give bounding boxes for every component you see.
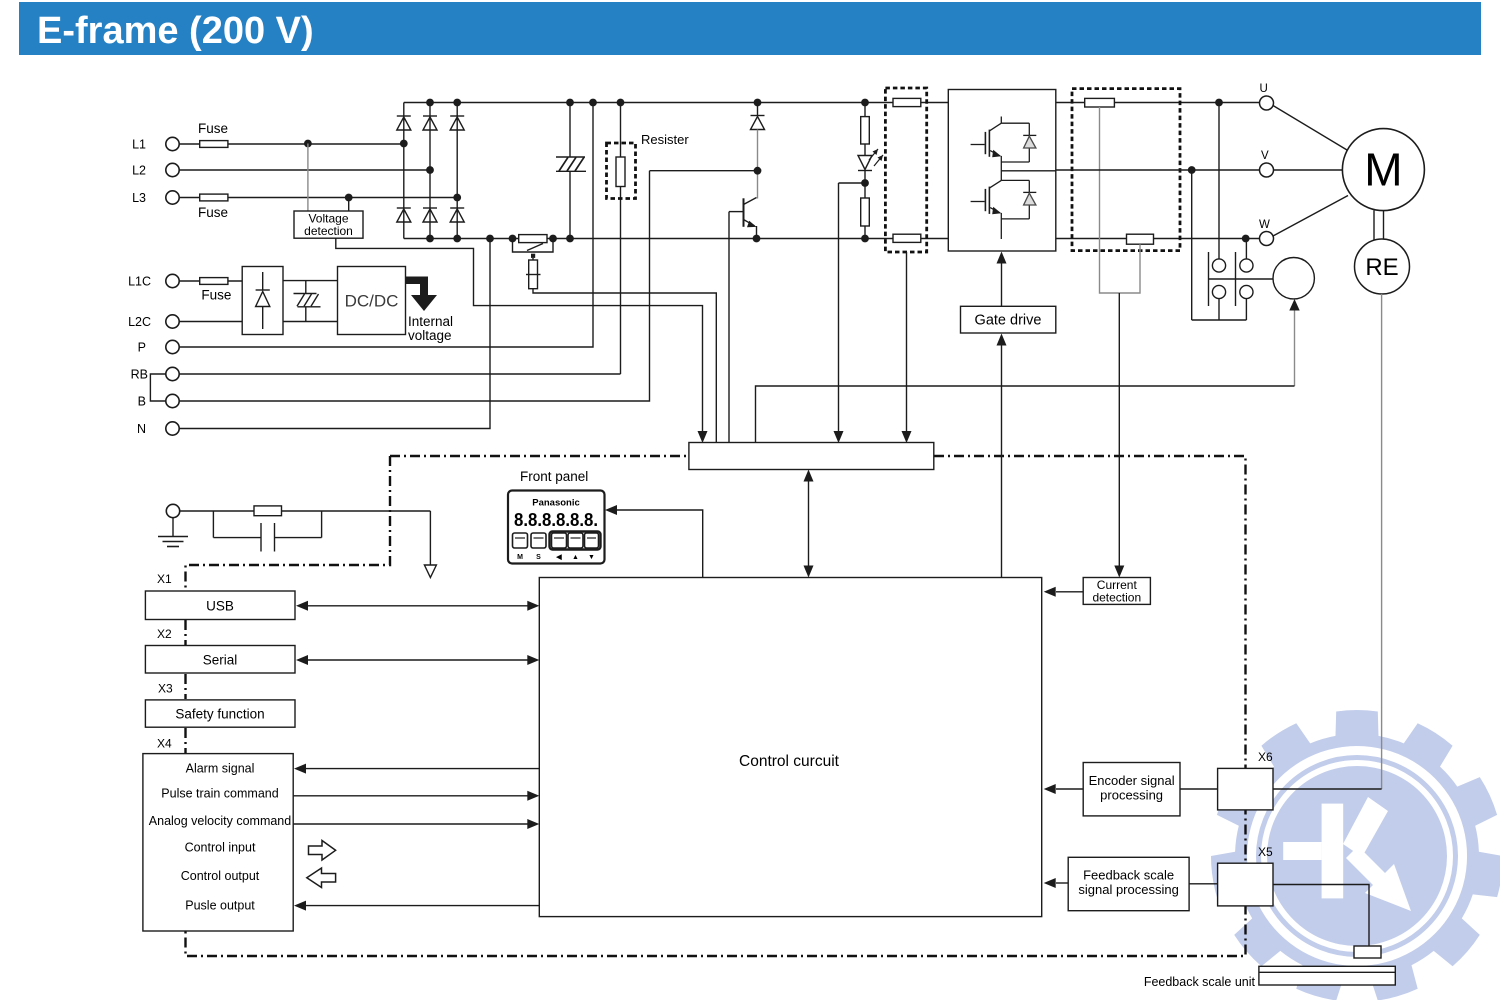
svg-text:P: P (138, 341, 146, 355)
svg-text:▲: ▲ (572, 554, 579, 561)
svg-text:X1: X1 (157, 572, 172, 586)
svg-text:X4: X4 (157, 737, 172, 751)
svg-text:U: U (1260, 83, 1268, 95)
svg-text:Control output: Control output (181, 869, 260, 883)
svg-text:N: N (137, 422, 146, 436)
svg-text:W: W (1259, 219, 1270, 231)
svg-text:Safety function: Safety function (175, 707, 264, 722)
svg-text:Feedback scale: Feedback scale (1083, 868, 1174, 883)
svg-text:Fuse: Fuse (198, 121, 228, 136)
svg-text:Control curcuit: Control curcuit (739, 753, 840, 770)
svg-text:L2: L2 (132, 164, 146, 178)
svg-text:X3: X3 (158, 682, 173, 696)
svg-text:Encoder signal: Encoder signal (1089, 773, 1175, 788)
svg-text:Fuse: Fuse (201, 288, 231, 303)
svg-text:Gate drive: Gate drive (975, 313, 1042, 329)
svg-text:processing: processing (1100, 788, 1163, 803)
svg-text:▼: ▼ (588, 554, 595, 561)
svg-text:Feedback scale unit: Feedback scale unit (1144, 975, 1256, 989)
svg-text:8.8.8.8.8.8.: 8.8.8.8.8.8. (514, 510, 598, 530)
svg-text:signal processing: signal processing (1078, 882, 1178, 897)
svg-text:Panasonic: Panasonic (532, 498, 580, 509)
svg-text:Analog velocity command: Analog velocity command (149, 814, 291, 828)
svg-text:Alarm signal: Alarm signal (186, 762, 255, 776)
svg-text:B: B (138, 395, 146, 409)
svg-text:DC/DC: DC/DC (345, 292, 399, 311)
svg-text:Internal: Internal (408, 314, 453, 329)
svg-text:Control input: Control input (185, 841, 256, 855)
svg-text:E-frame (200 V): E-frame (200 V) (37, 10, 314, 52)
svg-text:L2C: L2C (128, 315, 151, 329)
svg-text:L1: L1 (132, 138, 146, 152)
svg-text:M: M (1364, 144, 1402, 196)
svg-text:Front panel: Front panel (520, 469, 588, 484)
svg-text:RE: RE (1365, 254, 1398, 281)
svg-text:USB: USB (206, 599, 234, 614)
svg-text:Fuse: Fuse (198, 205, 228, 220)
svg-text:L3: L3 (132, 191, 146, 205)
svg-text:V: V (1261, 150, 1269, 162)
svg-text:X6: X6 (1258, 750, 1273, 764)
svg-text:X2: X2 (157, 627, 172, 641)
svg-text:voltage: voltage (408, 328, 452, 343)
svg-text:detection: detection (304, 224, 353, 238)
svg-text:detection: detection (1092, 591, 1141, 605)
svg-text:L1C: L1C (128, 275, 151, 289)
svg-text:Resister: Resister (641, 132, 689, 147)
svg-text:RB: RB (131, 368, 148, 382)
svg-text:◀: ◀ (555, 554, 562, 561)
svg-text:S: S (536, 554, 541, 561)
svg-text:Serial: Serial (203, 653, 238, 668)
svg-text:M: M (517, 554, 523, 561)
svg-text:Pulse train command: Pulse train command (161, 787, 278, 801)
svg-text:X5: X5 (1258, 845, 1273, 859)
svg-text:Pusle output: Pusle output (185, 899, 255, 913)
